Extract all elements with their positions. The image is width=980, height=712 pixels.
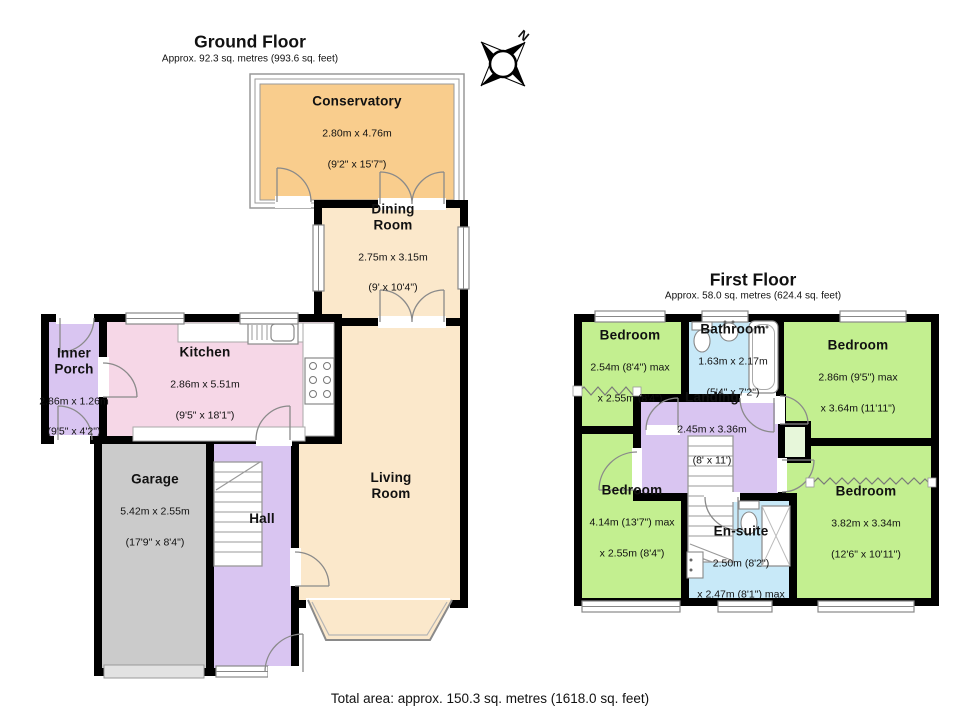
first-floor-subtitle: Approx. 58.0 sq. metres (624.4 sq. feet) <box>665 291 841 302</box>
total-area-text: Total area: approx. 150.3 sq. metres (16… <box>0 691 980 706</box>
ground-floor-subtitle: Approx. 92.3 sq. metres (993.6 sq. feet) <box>162 54 338 65</box>
ground-stairs <box>214 462 262 566</box>
floorplan-page: Ground Floor Approx. 92.3 sq. metres (99… <box>0 0 980 712</box>
first-floor-title: First Floor <box>710 270 797 291</box>
toilet-icon <box>739 501 759 509</box>
garage-room <box>98 440 210 672</box>
garage-door <box>104 665 204 678</box>
closet <box>782 424 808 460</box>
compass-icon <box>481 42 525 86</box>
hob-icon <box>305 358 334 404</box>
bedroom-bottom-right-room <box>782 442 935 602</box>
inner-porch-room <box>45 318 103 440</box>
conservatory-room <box>250 74 464 208</box>
ground-floor-plan <box>45 74 469 678</box>
dining-room <box>318 204 464 322</box>
basin-icon <box>687 552 703 578</box>
ground-floor-title: Ground Floor <box>194 32 306 53</box>
bay-window <box>306 598 452 640</box>
toilet-icon <box>692 322 712 330</box>
basin-icon <box>720 323 738 341</box>
floorplan-drawing <box>0 0 980 712</box>
bathtub-icon <box>749 321 778 393</box>
first-floor-plan <box>573 311 936 612</box>
